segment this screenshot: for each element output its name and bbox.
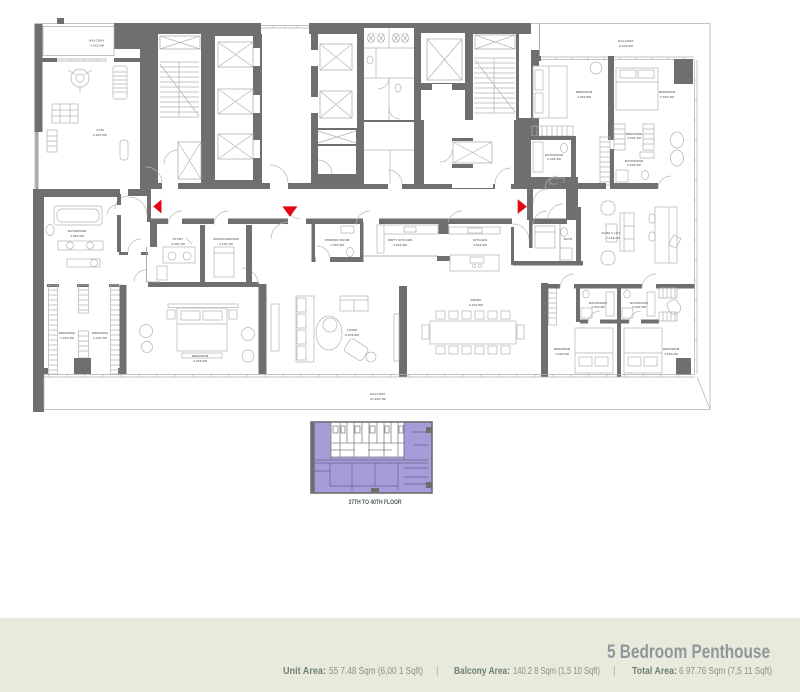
svg-text:9.0X2.0M: 9.0X2.0M [619, 44, 633, 48]
svg-text:8.2X4.6M: 8.2X4.6M [469, 303, 483, 307]
svg-text:Balcony Area:: Balcony Area: [454, 666, 510, 677]
svg-text:BALCONY: BALCONY [618, 39, 634, 43]
svg-text:3.3X2.3M: 3.3X2.3M [632, 305, 646, 309]
svg-text:4.6X3.2M: 4.6X3.2M [664, 352, 678, 356]
svg-text:LIVING: LIVING [347, 328, 358, 332]
svg-text:BALCONY: BALCONY [370, 392, 386, 396]
svg-text:5 Bedroom Penthouse: 5 Bedroom Penthouse [607, 641, 770, 663]
svg-text:2.4X3.7M: 2.4X3.7M [93, 336, 107, 340]
svg-text:8.2X6.9M: 8.2X6.9M [345, 333, 359, 337]
svg-text:3.5X2.3M: 3.5X2.3M [547, 157, 561, 161]
svg-text:6.2X6.0M: 6.2X6.0M [193, 359, 207, 363]
svg-text:DRESSING: DRESSING [59, 331, 76, 335]
svg-text:|: | [436, 666, 439, 677]
svg-text:4.2X3.2M: 4.2X3.2M [555, 352, 569, 356]
svg-text:DRESSING: DRESSING [92, 331, 109, 335]
svg-text:55 7.48 Sqm (6,00 1 Sqft): 55 7.48 Sqm (6,00 1 Sqft) [329, 666, 423, 677]
svg-text:6 97.76 Sqm (7,5 11 Sqft): 6 97.76 Sqm (7,5 11 Sqft) [679, 666, 772, 677]
svg-text:4.6X2.9M: 4.6X2.9M [473, 243, 487, 247]
svg-text:DINING: DINING [470, 298, 482, 302]
svg-text:STUDY: STUDY [173, 237, 184, 241]
svg-text:1.5X2.6M: 1.5X2.6M [330, 243, 344, 247]
svg-text:Unit Area:: Unit Area: [283, 666, 326, 677]
svg-text:|: | [613, 666, 616, 677]
svg-text:4.1X2.0M: 4.1X2.0M [90, 44, 104, 48]
svg-text:3.5X1.2M: 3.5X1.2M [627, 136, 641, 140]
svg-text:Total Area:: Total Area: [632, 666, 677, 677]
svg-text:3.1X3.7M: 3.1X3.7M [219, 242, 233, 246]
svg-text:1.9X3.7M: 1.9X3.7M [60, 336, 74, 340]
svg-text:MASSAGEROOM: MASSAGEROOM [213, 237, 239, 241]
svg-text:BATH: BATH [564, 237, 573, 241]
svg-text:BEDROOM: BEDROOM [192, 354, 209, 358]
svg-text:BEDROOM: BEDROOM [554, 347, 571, 351]
svg-text:POWDER ROOM: POWDER ROOM [325, 238, 350, 242]
svg-text:5.9X7.0M: 5.9X7.0M [93, 133, 107, 137]
svg-text:3.3X2.3M: 3.3X2.3M [591, 305, 605, 309]
svg-text:4.6X4.0M: 4.6X4.0M [70, 234, 84, 238]
svg-text:BALCONY: BALCONY [89, 39, 105, 43]
svg-text:4.6X2.6M: 4.6X2.6M [393, 243, 407, 247]
svg-text:7.1X6.0M: 7.1X6.0M [606, 236, 620, 240]
svg-text:3.5X2.3M: 3.5X2.3M [627, 163, 641, 167]
svg-text:5.5X4.2M: 5.5X4.2M [660, 95, 674, 99]
svg-text:GYM: GYM [96, 128, 104, 132]
svg-text:KITCHEN: KITCHEN [473, 238, 487, 242]
svg-text:3.3X3.7M: 3.3X3.7M [171, 242, 185, 246]
svg-text:BATHROOM: BATHROOM [68, 229, 87, 233]
svg-text:BEDROOM: BEDROOM [576, 90, 593, 94]
svg-text:BEDROOM: BEDROOM [663, 347, 680, 351]
svg-text:61.6X2.1M: 61.6X2.1M [370, 397, 386, 401]
svg-text:4.9X4.8M: 4.9X4.8M [577, 95, 591, 99]
svg-text:BEDROOM: BEDROOM [659, 90, 676, 94]
svg-text:140.2 8 Sqm (1,5 10 Sqft): 140.2 8 Sqm (1,5 10 Sqft) [513, 666, 600, 677]
svg-text:37TH TO 40TH FLOOR: 37TH TO 40TH FLOOR [349, 499, 402, 506]
svg-text:DIRTY KITCHEN: DIRTY KITCHEN [388, 238, 412, 242]
